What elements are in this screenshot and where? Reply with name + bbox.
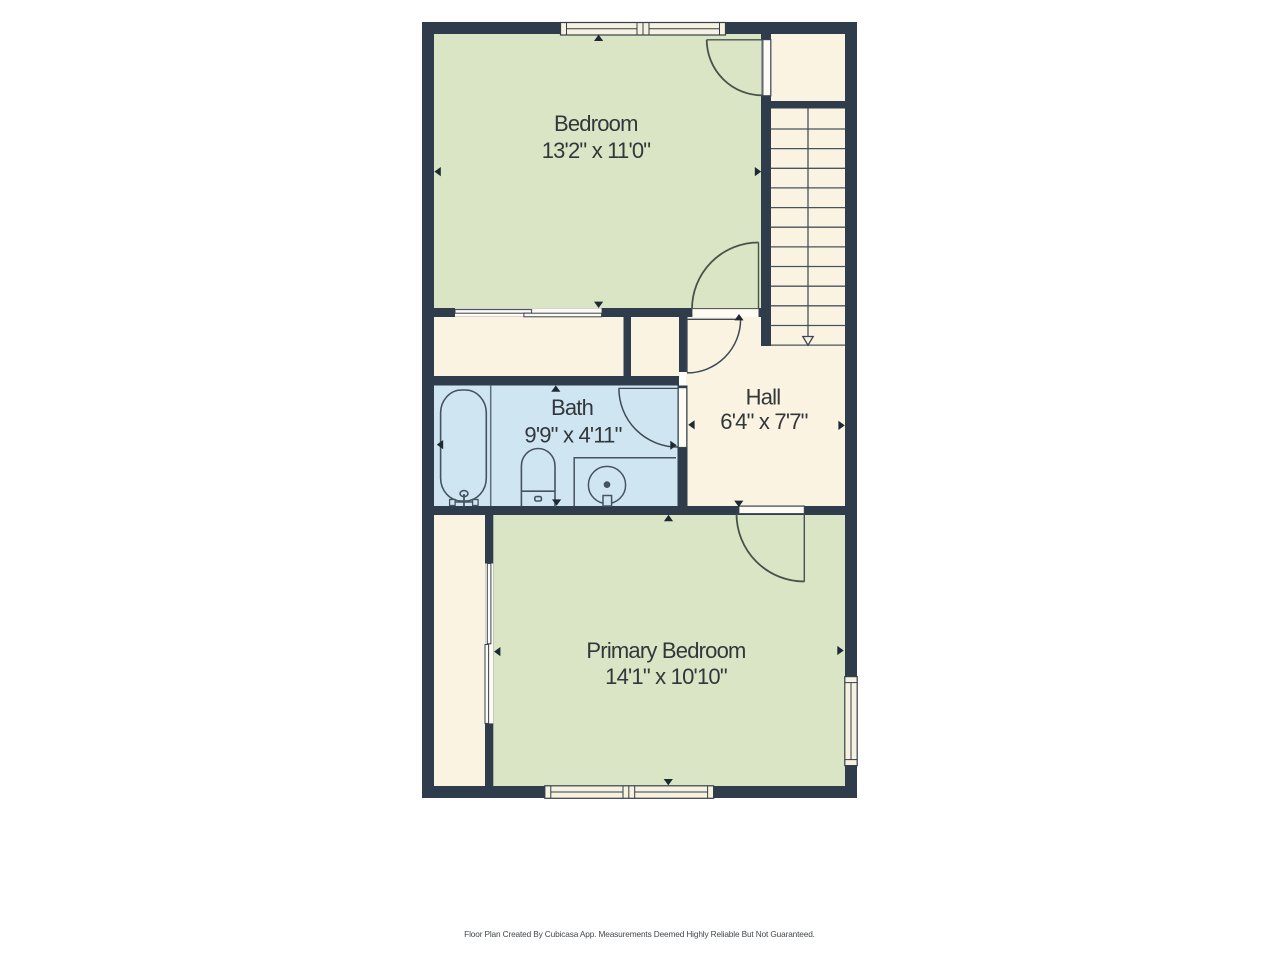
- svg-text:Primary Bedroom: Primary Bedroom: [586, 638, 745, 663]
- svg-text:Bedroom: Bedroom: [554, 111, 638, 136]
- svg-text:9'9" x 4'11": 9'9" x 4'11": [524, 423, 621, 448]
- svg-text:Floor Plan Created By Cubicasa: Floor Plan Created By Cubicasa App. Meas…: [464, 929, 815, 939]
- svg-text:13'2" x 11'0": 13'2" x 11'0": [542, 138, 651, 163]
- svg-text:6'4" x 7'7": 6'4" x 7'7": [720, 409, 807, 434]
- svg-text:Hall: Hall: [746, 385, 781, 410]
- svg-text:Bath: Bath: [551, 395, 593, 420]
- svg-text:14'1" x 10'10": 14'1" x 10'10": [605, 664, 727, 689]
